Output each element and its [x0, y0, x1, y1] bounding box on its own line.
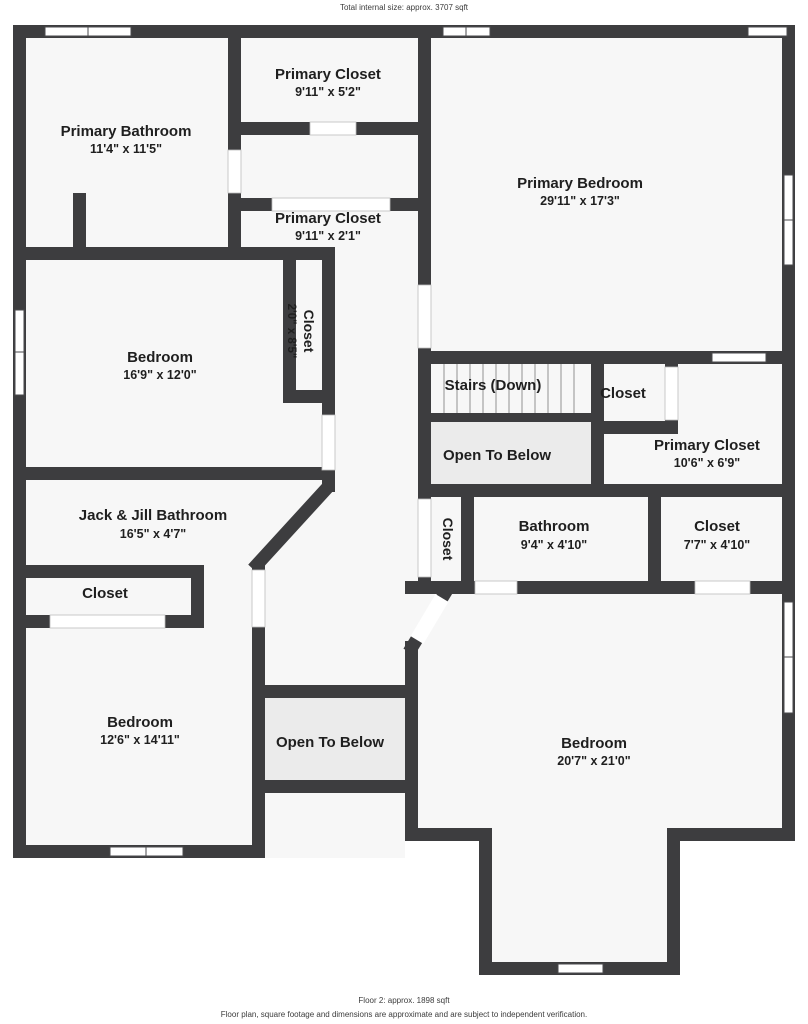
door-opening [310, 122, 356, 135]
room-label-primary-closet-top: Primary Closet [275, 66, 381, 83]
room-dims-primary-bathroom: 11'4" x 11'5" [90, 142, 162, 156]
room-label-closet-stairs: Closet [600, 385, 646, 402]
wall-segment [479, 828, 492, 975]
room-dims-primary-bedroom: 29'11" x 17'3" [540, 194, 620, 208]
window [558, 964, 603, 973]
wall-segment [73, 193, 86, 247]
wall-segment [228, 25, 241, 247]
wall-segment [667, 828, 680, 975]
room-label-bathroom-mid: Bathroom [519, 518, 590, 535]
wall-segment [648, 497, 661, 594]
door-opening [228, 150, 241, 193]
wall-segment [405, 828, 492, 841]
door-opening [418, 285, 431, 348]
room-dims-bedroom-bottom-right: 20'7" x 21'0" [557, 754, 630, 768]
wall-segment [667, 828, 795, 841]
window [712, 353, 766, 362]
wall-segment [13, 565, 204, 578]
room-dims-closet-sliver: 2'0" x 8'5" [285, 304, 297, 359]
door-opening [665, 367, 678, 420]
room-label-primary-closet-mid: Primary Closet [275, 210, 381, 227]
floor-plan-canvas: Total internal size: approx. 3707 sqft [0, 0, 808, 1024]
room-dims-primary-closet-top: 9'11" x 5'2" [295, 85, 361, 99]
wall-segment [13, 247, 335, 260]
wall-segment [252, 780, 418, 793]
room-label-primary-closet-right: Primary Closet [654, 437, 760, 454]
wall-segment [461, 497, 474, 594]
room-dims-bathroom-mid: 9'4" x 4'10" [521, 538, 588, 552]
room-label-closet-hall: Closet [440, 518, 456, 561]
room-label-stairs: Stairs (Down) [445, 377, 542, 394]
room-label-closet-bottom-left: Closet [82, 585, 128, 602]
door-opening [322, 415, 335, 470]
room-dims-bedroom-bottom-left: 12'6" x 14'11" [100, 733, 180, 747]
room-label-primary-bathroom: Primary Bathroom [61, 123, 192, 140]
room-label-primary-bedroom: Primary Bedroom [517, 175, 643, 192]
room-dims-closet-mid-right: 7'7" x 4'10" [684, 538, 751, 552]
floor-size-text: Floor 2: approx. 1898 sqft [358, 996, 450, 1005]
floor-plan-page: Total internal size: approx. 3707 sqft [0, 0, 808, 1024]
total-size-text: Total internal size: approx. 3707 sqft [340, 3, 469, 12]
room-label-closet-sliver: Closet [301, 310, 317, 353]
room-label-closet-mid-right: Closet [694, 518, 740, 535]
room-dims-primary-closet-mid: 9'11" x 2'1" [295, 229, 361, 243]
wall-segment [405, 641, 418, 841]
door-opening [50, 615, 165, 628]
wall-segment [591, 421, 678, 434]
room-label-jack-jill: Jack & Jill Bathroom [79, 507, 227, 524]
door-opening [475, 581, 517, 594]
room-label-open-below-stairs: Open To Below [443, 447, 551, 464]
room-dims-primary-closet-right: 10'6" x 6'9" [674, 456, 741, 470]
window [748, 27, 787, 36]
wall-segment [13, 467, 335, 480]
room-dims-bedroom-left: 16'9" x 12'0" [123, 368, 196, 382]
room-label-bedroom-left: Bedroom [127, 349, 193, 366]
room-label-bedroom-bottom-left: Bedroom [107, 714, 173, 731]
wall-segment [418, 484, 795, 497]
door-opening [695, 581, 750, 594]
door-opening [418, 499, 431, 577]
wall-segment [13, 25, 26, 858]
wall-segment [782, 25, 795, 841]
door-opening [252, 570, 265, 627]
room-label-bedroom-bottom-right: Bedroom [561, 735, 627, 752]
room-label-open-below-center: Open To Below [276, 734, 384, 751]
wall-segment [283, 390, 335, 403]
wall-segment [252, 685, 418, 698]
wall-segment [418, 413, 604, 422]
room-dims-jack-jill: 16'5" x 4'7" [120, 527, 187, 541]
disclaimer-text: Floor plan, square footage and dimension… [221, 1010, 587, 1019]
